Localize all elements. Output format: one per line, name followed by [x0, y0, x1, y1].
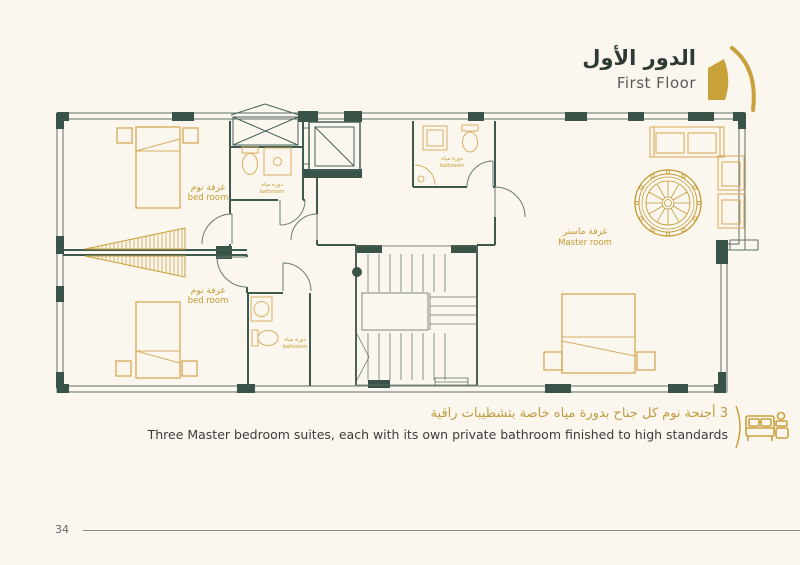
floor-title-arabic: الدور الأول: [582, 44, 696, 72]
bathroom2-label-en: bathroom: [283, 344, 307, 350]
bathroom3-label-en: bathroom: [440, 163, 464, 169]
bathroom2-label-ar: دورة مياه: [284, 337, 306, 343]
round-rug: [635, 170, 701, 236]
feature-text-arabic: 3 أجنحة نوم كل جناح بدورة مياه خاصة بتشط…: [148, 404, 728, 424]
bracket-curve: [736, 406, 740, 448]
master-label-en: Master room: [558, 238, 612, 248]
staircase: [352, 246, 477, 386]
bed-master: [544, 294, 655, 373]
brochure-page: غرفة نوم bed room غرفة نوم bed room غرفة…: [0, 0, 800, 565]
interior-walls: [63, 121, 495, 386]
outer-walls: [57, 113, 758, 392]
toilet-bath1: [242, 147, 291, 175]
footer-divider: [83, 530, 800, 531]
floor-title-english: First Floor: [582, 74, 696, 92]
bathroom1-label-en: bathroom: [260, 189, 284, 195]
bedroom1-label-ar: غرفة نوم: [191, 183, 226, 193]
bedroom2-label-ar: غرفة نوم: [191, 286, 226, 296]
furniture: [116, 125, 744, 378]
stair-column: [352, 267, 362, 277]
bed-suite-icon: [730, 402, 792, 454]
bathroom3-label-ar: دورة مياه: [441, 156, 463, 162]
elevator: [303, 122, 360, 170]
bedroom1-label-en: bed room: [188, 193, 229, 203]
feature-text: 3 أجنحة نوم كل جناح بدورة مياه خاصة بتشط…: [148, 404, 728, 444]
fixtures-bath3: [415, 125, 478, 185]
brand-door-icon: [702, 42, 762, 112]
master-label-ar: غرفة ماستر: [562, 227, 608, 237]
page-header: الدور الأول First Floor: [582, 44, 696, 92]
closets: [85, 228, 185, 277]
toilet-icon: [778, 413, 785, 420]
bathroom1-label-ar: دورة مياه: [261, 182, 283, 188]
shaft-and-shower: [231, 104, 299, 145]
bed-bottom-left: [116, 302, 197, 378]
bedroom2-label-en: bed room: [188, 296, 229, 306]
bed-top-left: [117, 127, 198, 208]
fixtures-bath2: [251, 297, 278, 346]
page-number: 34: [55, 523, 69, 536]
feature-text-english: Three Master bedroom suites, each with i…: [148, 426, 728, 445]
